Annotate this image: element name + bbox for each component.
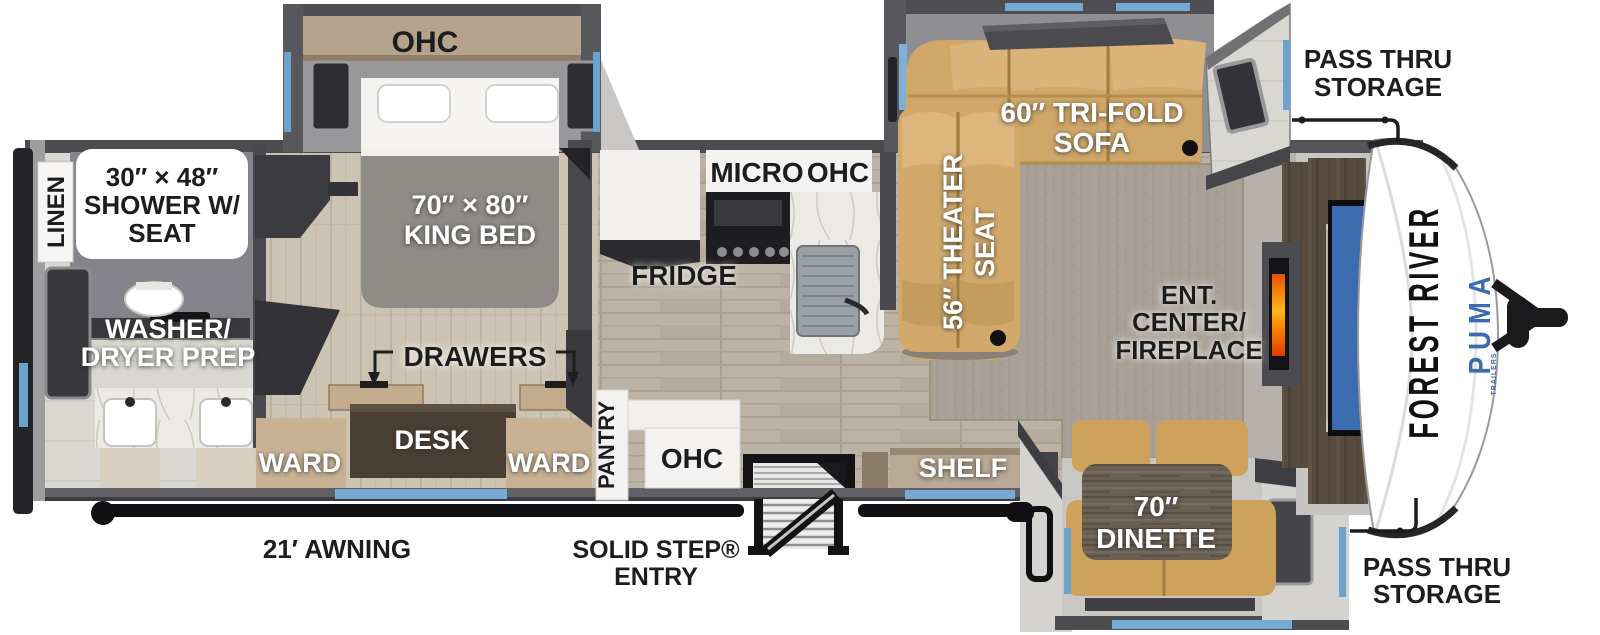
svg-text:OHC: OHC — [392, 26, 459, 59]
svg-text:60″ TRI-FOLD: 60″ TRI-FOLD — [1001, 97, 1184, 128]
svg-text:ENTRY: ENTRY — [614, 563, 698, 591]
svg-text:SOLID STEP®: SOLID STEP® — [572, 536, 740, 564]
svg-text:WASHER/: WASHER/ — [105, 314, 232, 344]
svg-text:CENTER/: CENTER/ — [1132, 307, 1246, 337]
svg-text:DESK: DESK — [394, 425, 470, 455]
svg-text:56″ THEATER: 56″ THEATER — [938, 154, 968, 330]
svg-text:WARD: WARD — [259, 448, 342, 478]
svg-text:FOREST RIVER: FOREST RIVER — [1401, 205, 1448, 438]
svg-text:DRYER PREP: DRYER PREP — [81, 342, 256, 372]
svg-text:PANTRY: PANTRY — [594, 401, 619, 489]
svg-text:SOFA: SOFA — [1054, 127, 1130, 158]
svg-text:OHC: OHC — [807, 157, 869, 188]
svg-text:LINEN: LINEN — [43, 176, 70, 248]
svg-text:STORAGE: STORAGE — [1314, 72, 1442, 102]
svg-text:PASS THRU: PASS THRU — [1304, 44, 1452, 74]
svg-text:70″ × 80″: 70″ × 80″ — [412, 190, 529, 220]
svg-text:SEAT: SEAT — [970, 206, 1000, 277]
svg-text:MICRO: MICRO — [710, 157, 803, 188]
svg-text:SHOWER W/: SHOWER W/ — [84, 190, 240, 220]
svg-text:FIREPLACE: FIREPLACE — [1115, 335, 1262, 365]
svg-text:FRIDGE: FRIDGE — [631, 260, 737, 291]
svg-text:WARD: WARD — [508, 448, 591, 478]
svg-text:DINETTE: DINETTE — [1096, 523, 1216, 554]
svg-text:KING BED: KING BED — [404, 220, 536, 250]
svg-text:OHC: OHC — [661, 443, 723, 474]
svg-text:DRAWERS: DRAWERS — [403, 341, 546, 372]
svg-text:ENT.: ENT. — [1161, 280, 1217, 310]
svg-text:21′ AWNING: 21′ AWNING — [263, 534, 411, 564]
svg-text:TRAILERS: TRAILERS — [1491, 353, 1498, 396]
svg-text:STORAGE: STORAGE — [1373, 579, 1501, 609]
svg-text:SHELF: SHELF — [919, 453, 1008, 483]
svg-text:70″: 70″ — [1134, 491, 1179, 522]
svg-text:SEAT: SEAT — [128, 218, 196, 248]
svg-text:PASS THRU: PASS THRU — [1363, 552, 1511, 582]
svg-text:30″ × 48″: 30″ × 48″ — [106, 162, 218, 192]
